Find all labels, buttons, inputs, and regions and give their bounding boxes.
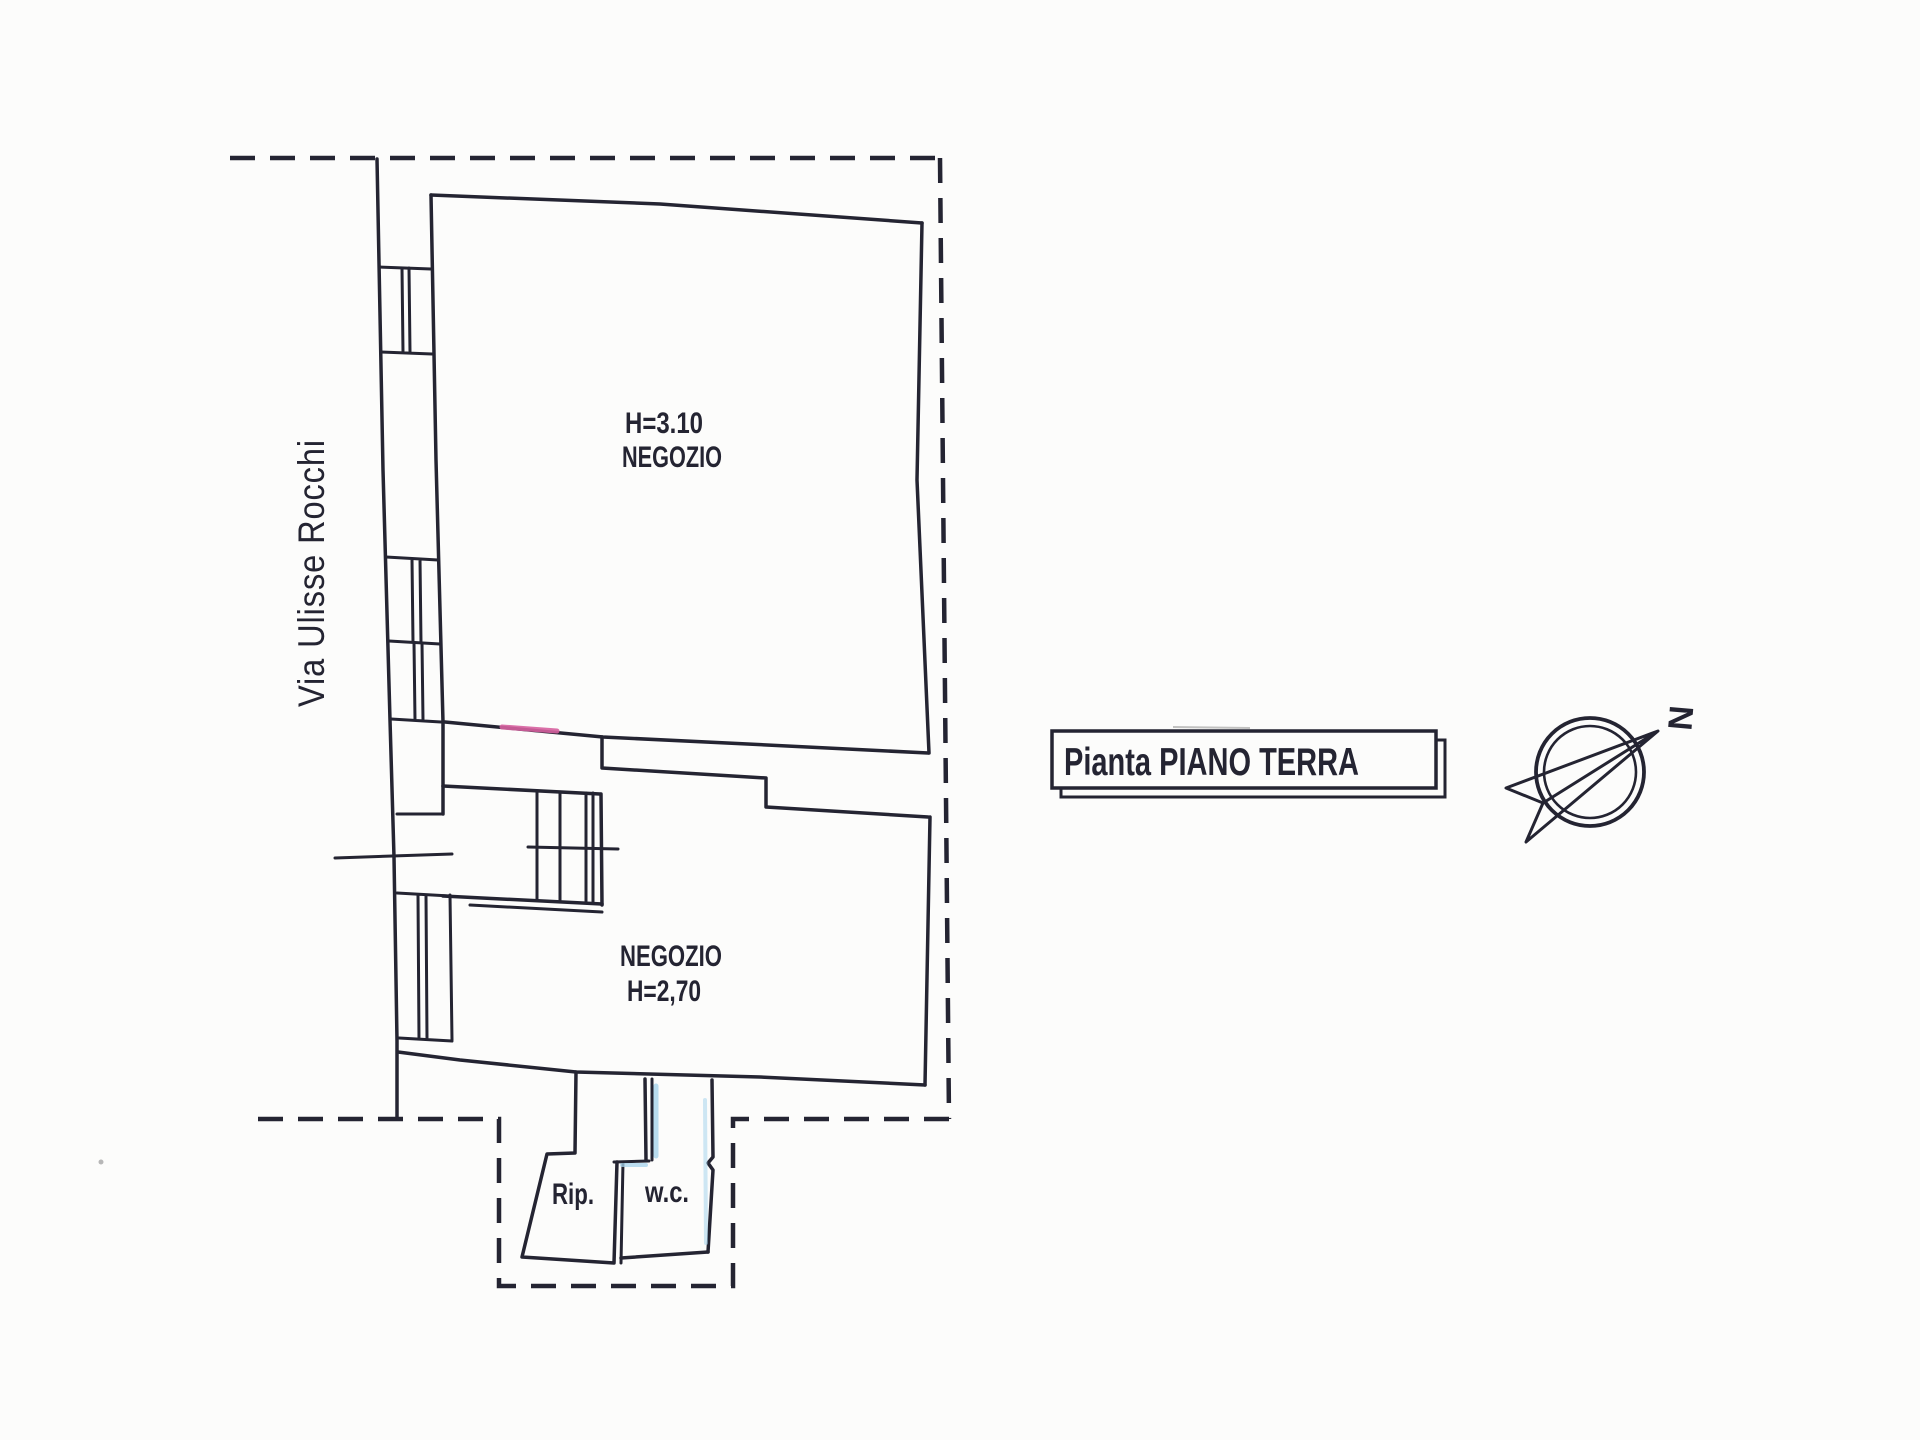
north-compass: N [1506,704,1700,842]
window-4 [397,893,452,1041]
scan-accents [99,727,707,1243]
storage-room-outline [522,1072,617,1263]
upper-shop-name-label: NEGOZIO [622,441,722,474]
boundary-dashed-right [940,158,949,1119]
storage-room-label: Rip. [552,1178,594,1211]
vestibule-top-wall [443,786,600,794]
lower-shop-name-label: NEGOZIO [620,940,722,973]
title-box: Pianta PIANO TERRA [1052,727,1445,797]
facade-outer-wall [377,159,397,1118]
right-wall-upper [917,223,929,753]
wc-blue-tint-right [705,1100,706,1243]
lower-shop-top-left-wall-inner [470,905,602,912]
window-3 [391,643,441,722]
top-wall [431,195,922,223]
wc-left-wall [645,1079,646,1160]
scan-speck [99,1160,104,1165]
window-1 [379,267,432,354]
lower-shop-top-left-wall [443,896,602,904]
plan-title: Pianta PIANO TERRA [1064,741,1359,784]
floor-plan-canvas: Via Ulisse Rocchi H=3.10 NEGOZIO NEGOZIO… [0,0,1920,1440]
wc-bottom-wall [621,1252,708,1258]
window-2 [386,557,440,644]
pink-highlight-segment [502,727,557,731]
divider-wall-inner [621,1162,623,1263]
right-wall-lower [925,817,930,1085]
wc-right-wall [708,1080,713,1252]
title-box-scan-line [1173,727,1250,728]
interior-door-line [528,847,618,849]
lower-shop-height-label: H=2,70 [627,975,701,1008]
north-letter: N [1660,704,1700,732]
wc-step-wall [614,1161,649,1162]
street-name-label: Via Ulisse Rocchi [291,439,332,707]
wc-room-label: w.c. [644,1176,689,1209]
upper-shop-height-label: H=3.10 [625,407,703,440]
scanned-floor-plan-page: { "street_label": "Via Ulisse Rocchi", "… [0,0,1920,1440]
bottom-wall [398,1052,925,1085]
entrance-threshold-line [335,854,452,858]
rear-annex [522,1072,713,1263]
property-boundary [230,158,949,1286]
